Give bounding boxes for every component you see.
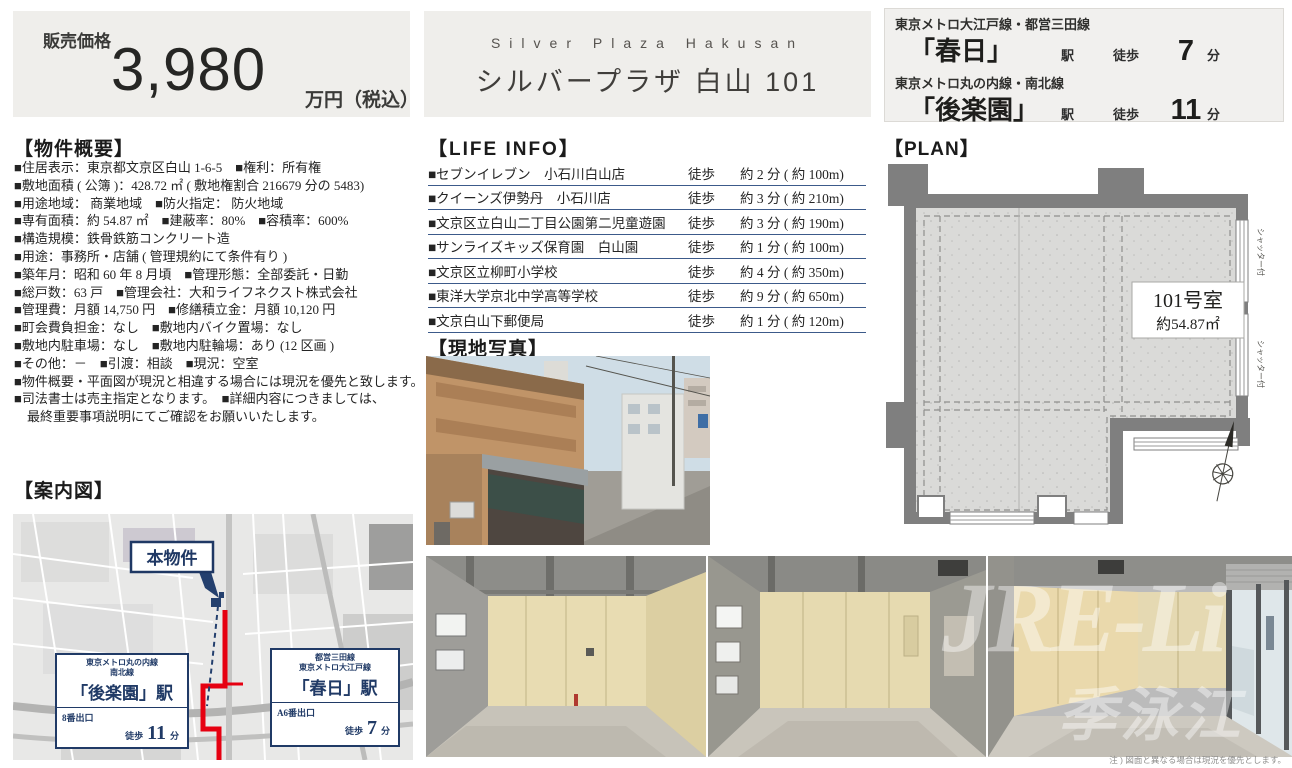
access-station-2: 「後楽園」 [909, 90, 1061, 127]
bottom-disclaimer: 注 ) 図面と異なる場合は現況を優先とします。 [1086, 754, 1286, 766]
poi-time: 約 4 分 ( 約 350m) [740, 261, 866, 281]
station-box-korakuen: 東京メトロ丸の内線 南北線 「後楽園」駅 8番出口 徒歩 11 分 [55, 653, 189, 749]
walk-label: 徒歩 [345, 726, 363, 736]
floor-plan-art: 101号室 約54.87㎡ シャッター付 シャッター付 [886, 162, 1282, 538]
poi-time: 約 3 分 ( 約 210m) [740, 187, 866, 207]
access-walk-2: 徒歩 [1113, 104, 1165, 123]
outline-line: ■築年月：昭和 60 年 8 月頃 ■管理形態：全部委託・日勤 [14, 266, 426, 284]
poi-walk: 徒歩 [688, 236, 740, 256]
poi-walk: 徒歩 [688, 212, 740, 232]
poi-walk: 徒歩 [688, 187, 740, 207]
interior-photo-1-art [426, 556, 706, 757]
access-minutes-1: 7 [1165, 35, 1207, 68]
poi-name: ■文京区立白山二丁目公園第二児童遊園 [428, 212, 688, 232]
shutter-label-1: シャッター付 [1256, 228, 1266, 276]
poi-name: ■クイーンズ伊勢丹 小石川店 [428, 187, 688, 207]
life-info-heading: 【LIFE INFO】 [428, 134, 580, 161]
exterior-photo [426, 356, 710, 545]
floor-plan: 101号室 約54.87㎡ シャッター付 シャッター付 [886, 162, 1282, 538]
flyer-sheet: 販売価格 3,980 万円（税込） Silver Plaza Hakusan シ… [0, 0, 1292, 768]
access-row-2: 「後楽園」 駅 徒歩 11 分 [885, 90, 1283, 127]
walk-unit: 分 [170, 731, 179, 741]
outline-line: ■用途：事務所・店舗 ( 管理規約にて条件有り ) [14, 248, 426, 266]
life-info-row: ■セブンイレブン 小石川白山店 徒歩 約 2 分 ( 約 100m) [428, 161, 866, 186]
poi-time: 約 9 分 ( 約 650m) [740, 285, 866, 305]
station-box-kasuga: 都営三田線 東京メトロ大江戸線 「春日」駅 A6番出口 徒歩 7 分 [270, 648, 400, 747]
guide-map: 本物件 東京メトロ丸の内線 南北線 「後楽園」駅 8番出口 徒歩 11 分 都営… [13, 514, 413, 760]
outline-line: ■町会費負担金：なし ■敷地内バイク置場：なし [14, 319, 426, 337]
outline-line: ■管理費：月額 14,750 円 ■修繕積立金：月額 10,120 円 [14, 301, 426, 319]
price-box: 販売価格 3,980 万円（税込） [13, 11, 410, 117]
station-walk: 徒歩 7 分 [272, 717, 398, 740]
interior-photo-2-art [708, 556, 986, 757]
outline-line: ■敷地内駐車場：なし ■敷地内駐輪場：あり (12 区画 ) [14, 337, 426, 355]
life-info-table: ■セブンイレブン 小石川白山店 徒歩 約 2 分 ( 約 100m) ■クイーン… [428, 161, 866, 333]
station-name: 「後楽園」駅 [57, 678, 187, 704]
station-line: 都営三田線 [315, 653, 355, 662]
building-name-ja: シルバープラザ 白山 101 [424, 51, 871, 99]
interior-photo-1 [426, 556, 706, 757]
walk-minutes: 7 [367, 717, 377, 739]
outline-line: ■司法書士は売主指定となります。 ■詳細内容につきましては、 [14, 390, 426, 408]
shutter-label-2: シャッター付 [1256, 340, 1266, 388]
price-amount: 3,980 [111, 35, 266, 104]
interior-photo-3-art [988, 556, 1292, 757]
station-access-box: 東京メトロ大江戸線・都営三田線 「春日」 駅 徒歩 7 分 東京メトロ丸の内線・… [884, 8, 1284, 122]
price-label: 販売価格 [43, 27, 111, 52]
outline-line: ■用途地域： 商業地域 ■防火指定： 防火地域 [14, 195, 426, 213]
poi-walk: 徒歩 [688, 310, 740, 330]
walk-label: 徒歩 [125, 731, 143, 741]
poi-walk: 徒歩 [688, 285, 740, 305]
outline-line: ■その他：－ ■引渡：相談 ■現況：空室 [14, 355, 426, 373]
building-name-en: Silver Plaza Hakusan [424, 11, 871, 51]
poi-name: ■サンライズキッズ保育園 白山園 [428, 236, 688, 256]
outline-list: ■住居表示：東京都文京区白山 1-6-5 ■権利：所有権 ■敷地面積 ( 公簿 … [14, 159, 426, 426]
outline-line: ■専有面積：約 54.87 ㎡ ■建蔽率：80% ■容積率：600% [14, 212, 426, 230]
outline-line: 最終重要事項説明にてご確認をお願いいたします。 [14, 408, 426, 426]
walk-minutes: 11 [147, 722, 166, 744]
access-station-1: 「春日」 [909, 31, 1061, 68]
poi-name: ■東洋大学京北中学高等学校 [428, 285, 688, 305]
access-row-1: 「春日」 駅 徒歩 7 分 [885, 31, 1283, 68]
poi-name: ■文京白山下郵便局 [428, 310, 688, 330]
poi-name: ■セブンイレブン 小石川白山店 [428, 163, 688, 183]
station-name: 「春日」駅 [272, 673, 398, 699]
access-eki-2: 駅 [1061, 104, 1113, 123]
life-info-row: ■東洋大学京北中学高等学校 徒歩 約 9 分 ( 約 650m) [428, 284, 866, 309]
life-info-row: ■文京区立白山二丁目公園第二児童遊園 徒歩 約 3 分 ( 約 190m) [428, 210, 866, 235]
property-callout-label: 本物件 [147, 548, 198, 568]
plan-room-label: 101号室 [1153, 289, 1223, 312]
price-unit: 万円（税込） [305, 85, 410, 112]
outline-line: ■構造規模：鉄骨鉄筋コンクリート造 [14, 230, 426, 248]
station-line: 東京メトロ大江戸線 [299, 663, 371, 672]
access-eki-1: 駅 [1061, 45, 1113, 64]
station-walk: 徒歩 11 分 [57, 722, 187, 745]
poi-walk: 徒歩 [688, 261, 740, 281]
property-marker [211, 598, 221, 607]
access-walk-1: 徒歩 [1113, 45, 1165, 64]
plan-heading: 【PLAN】 [884, 134, 980, 161]
access-unit-1: 分 [1207, 45, 1220, 64]
outline-line: ■物件概要・平面図が現況と相違する場合には現況を優先と致します。 [14, 373, 426, 391]
interior-photo-3 [988, 556, 1292, 757]
walk-unit: 分 [381, 726, 390, 736]
station-line: 南北線 [110, 668, 134, 677]
title-box: Silver Plaza Hakusan シルバープラザ 白山 101 [424, 11, 871, 117]
life-info-row: ■クイーンズ伊勢丹 小石川店 徒歩 約 3 分 ( 約 210m) [428, 186, 866, 211]
map-heading: 【案内図】 [14, 476, 114, 503]
access-unit-2: 分 [1207, 104, 1220, 123]
outline-line: ■敷地面積 ( 公簿 )：428.72 ㎡ ( 敷地権割合 216679 分の … [14, 177, 426, 195]
life-info-row: ■文京白山下郵便局 徒歩 約 1 分 ( 約 120m) [428, 308, 866, 333]
access-minutes-2: 11 [1165, 94, 1207, 127]
exterior-photo-art [426, 356, 710, 545]
poi-walk: 徒歩 [688, 163, 740, 183]
poi-time: 約 1 分 ( 約 100m) [740, 236, 866, 256]
life-info-row: ■サンライズキッズ保育園 白山園 徒歩 約 1 分 ( 約 100m) [428, 235, 866, 260]
station-line: 東京メトロ丸の内線 [86, 658, 158, 667]
poi-time: 約 2 分 ( 約 100m) [740, 163, 866, 183]
interior-photo-2 [708, 556, 986, 757]
plan-room-area: 約54.87㎡ [1156, 316, 1220, 333]
life-info-row: ■文京区立柳町小学校 徒歩 約 4 分 ( 約 350m) [428, 259, 866, 284]
outline-line: ■住居表示：東京都文京区白山 1-6-5 ■権利：所有権 [14, 159, 426, 177]
outline-line: ■総戸数：63 戸 ■管理会社：大和ライフネクスト株式会社 [14, 284, 426, 302]
outline-heading: 【物件概要】 [14, 134, 134, 161]
poi-time: 約 1 分 ( 約 120m) [740, 310, 866, 330]
poi-time: 約 3 分 ( 約 190m) [740, 212, 866, 232]
poi-name: ■文京区立柳町小学校 [428, 261, 688, 281]
